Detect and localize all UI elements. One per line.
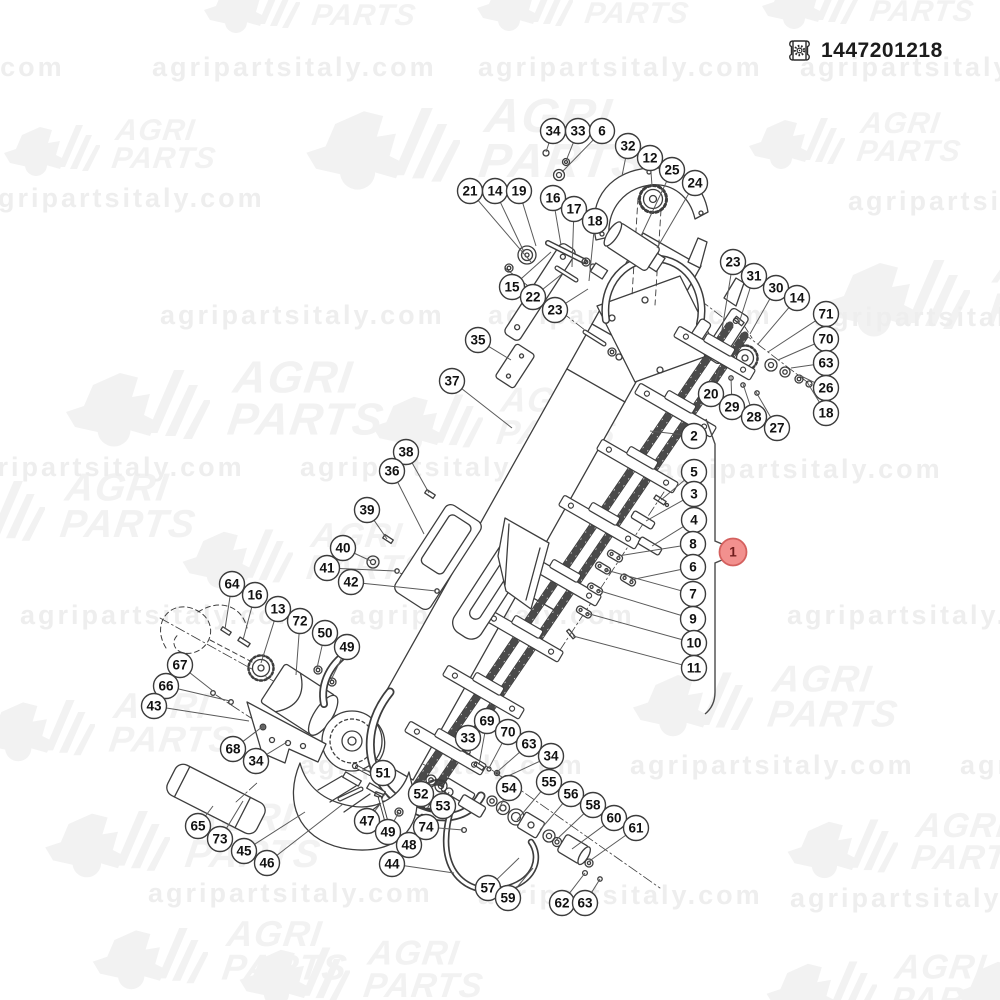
balloon-number: 24 — [687, 176, 703, 191]
balloon-13[interactable]: 13 — [261, 597, 291, 664]
balloon-number: 30 — [768, 281, 783, 296]
balloon-number: 31 — [746, 269, 762, 284]
leader-line — [404, 866, 454, 873]
balloon-number: 18 — [818, 406, 834, 421]
balloon-number: 14 — [789, 291, 805, 306]
balloon-number: 35 — [470, 333, 486, 348]
leader-line — [296, 633, 299, 675]
balloon-number: 26 — [818, 381, 834, 396]
balloon-number: 53 — [435, 799, 451, 814]
leader-line — [523, 203, 536, 246]
balloon-number: 20 — [703, 387, 718, 402]
balloon-33[interactable]: 33 — [566, 119, 591, 162]
leader-line — [412, 463, 429, 493]
balloon-number: 45 — [236, 844, 252, 859]
leader-line — [573, 636, 682, 665]
balloon-number: 11 — [687, 661, 702, 676]
leader-line — [652, 527, 683, 546]
balloon-number: 21 — [462, 184, 478, 199]
leader-line — [540, 803, 563, 830]
balloon-number: 38 — [398, 445, 414, 460]
balloon-number: 1 — [729, 545, 737, 560]
balloon-number: 2 — [690, 429, 698, 444]
leader-line — [731, 377, 732, 395]
leader-line — [592, 879, 600, 892]
balloon-number: 25 — [664, 163, 680, 178]
balloon-number: 71 — [818, 307, 834, 322]
balloon-number: 55 — [541, 775, 557, 790]
balloon-number: 69 — [479, 714, 494, 729]
balloon-number: 36 — [384, 464, 400, 479]
balloon-number: 29 — [724, 400, 739, 415]
leader-line — [190, 673, 213, 691]
balloon-number: 4 — [690, 513, 698, 528]
balloon-16[interactable]: 16 — [541, 186, 566, 246]
balloon-number: 8 — [689, 537, 697, 552]
balloon-43[interactable]: 43 — [142, 694, 250, 722]
machinery-linework — [160, 150, 815, 890]
balloon-number: 6 — [598, 124, 606, 139]
balloon-number: 28 — [746, 410, 762, 425]
leader-line — [243, 607, 252, 640]
balloon-number: 18 — [587, 214, 603, 229]
balloon-number: 70 — [818, 332, 833, 347]
balloon-number: 58 — [585, 798, 601, 813]
balloon-35[interactable]: 35 — [466, 328, 512, 361]
balloon-number: 65 — [190, 819, 206, 834]
leader-line — [586, 613, 682, 640]
balloon-number: 6 — [689, 560, 697, 575]
balloon-number: 34 — [543, 749, 559, 764]
balloon-number: 37 — [444, 374, 459, 389]
balloon-19[interactable]: 19 — [507, 179, 537, 247]
leader-line — [374, 520, 387, 539]
balloon-number: 40 — [335, 541, 350, 556]
balloon-number: 46 — [259, 856, 275, 871]
balloon-16[interactable]: 16 — [243, 583, 268, 641]
balloon-number: 23 — [725, 255, 741, 270]
leader-line — [562, 140, 593, 172]
balloon-number: 50 — [317, 626, 332, 641]
leader-line — [566, 143, 573, 161]
balloon-number: 39 — [359, 503, 374, 518]
balloon-number: 32 — [620, 139, 635, 154]
balloon-59[interactable]: 59 — [496, 868, 534, 911]
balloon-number: 48 — [401, 838, 417, 853]
balloon-64[interactable]: 64 — [220, 572, 245, 630]
balloon-63[interactable]: 63 — [791, 351, 839, 376]
leader-line — [778, 344, 815, 360]
leader-line — [768, 321, 816, 352]
balloon-1[interactable]: 1 — [720, 539, 747, 566]
balloon-72[interactable]: 72 — [288, 609, 313, 676]
balloon-number: 52 — [413, 787, 428, 802]
balloon-number: 74 — [418, 820, 434, 835]
leader-line — [497, 858, 519, 879]
leader-line — [506, 761, 540, 777]
balloon-number: 60 — [606, 811, 621, 826]
parts-diagram-page: AGRIPARTSAGRIPARTSAGRIPARTSAGRIPARTSAGRI… — [0, 0, 1000, 1000]
leader-line — [438, 828, 463, 830]
balloon-number: 17 — [566, 202, 581, 217]
balloon-6[interactable]: 6 — [630, 555, 706, 581]
leader-line — [758, 308, 789, 344]
balloon-number: 51 — [375, 766, 391, 781]
part-number: 1447201218 — [821, 39, 943, 63]
balloon-number: 34 — [545, 124, 561, 139]
balloon-number: 22 — [525, 290, 540, 305]
balloon-number: 19 — [511, 184, 526, 199]
leader-line — [566, 289, 588, 303]
leader-line — [497, 752, 520, 772]
balloon-34[interactable]: 34 — [541, 119, 566, 153]
leader-line — [500, 202, 524, 252]
balloon-36[interactable]: 36 — [380, 459, 425, 535]
balloon-40[interactable]: 40 — [331, 536, 372, 562]
balloon-number: 12 — [642, 151, 657, 166]
balloon-number: 66 — [158, 679, 174, 694]
balloon-49[interactable]: 49 — [331, 635, 360, 681]
leader-line — [750, 299, 770, 334]
balloon-39[interactable]: 39 — [355, 498, 388, 540]
balloon-number: 63 — [818, 356, 834, 371]
balloon-number: 70 — [500, 725, 515, 740]
certificate-gear-icon — [786, 37, 813, 64]
balloon-number: 61 — [628, 821, 644, 836]
leader-line — [178, 689, 230, 701]
balloon-number: 68 — [225, 742, 241, 757]
balloon-26[interactable]: 26 — [801, 376, 839, 401]
part-number-header: 1447201218 — [786, 37, 943, 64]
leader-line — [588, 835, 626, 862]
balloon-number: 42 — [343, 575, 358, 590]
balloon-number: 13 — [270, 602, 286, 617]
balloon-number: 57 — [480, 881, 495, 896]
balloon-number: 64 — [224, 577, 240, 592]
balloon-number: 5 — [690, 465, 698, 480]
leader-line — [606, 570, 681, 591]
balloon-number: 62 — [554, 896, 569, 911]
balloon-number: 44 — [384, 857, 400, 872]
exploded-parts-drawing: 3433632122524211419161718152223353723313… — [0, 0, 1000, 1000]
balloon-28[interactable]: 28 — [742, 384, 767, 430]
balloon-number: 16 — [247, 588, 263, 603]
leader-line — [478, 200, 531, 262]
leader-line — [166, 708, 249, 721]
leader-line — [572, 221, 574, 267]
balloon-number: 34 — [248, 754, 264, 769]
leader-line — [791, 365, 814, 368]
balloon-number: 72 — [292, 614, 307, 629]
balloon-number: 14 — [487, 184, 503, 199]
balloon-number: 73 — [212, 832, 228, 847]
balloon-number: 3 — [690, 487, 698, 502]
balloon-number: 27 — [769, 421, 784, 436]
balloon-number: 47 — [359, 814, 374, 829]
balloon-number: 10 — [686, 636, 701, 651]
leader-line — [317, 645, 322, 668]
balloon-number: 43 — [146, 699, 162, 714]
leader-line — [398, 482, 424, 534]
leader-line — [489, 743, 502, 768]
leader-line — [462, 389, 512, 428]
balloon-number: 67 — [172, 658, 187, 673]
balloon-number: 7 — [689, 587, 697, 602]
balloon-number: 59 — [500, 891, 515, 906]
leader-line — [555, 210, 561, 245]
balloon-number: 49 — [380, 825, 395, 840]
balloon-number: 33 — [460, 731, 476, 746]
balloon-number: 54 — [501, 781, 517, 796]
balloon-number: 49 — [339, 640, 354, 655]
balloon-number: 63 — [521, 737, 537, 752]
balloon-number: 63 — [577, 896, 593, 911]
group-bracket — [705, 419, 741, 714]
balloon-number: 16 — [545, 191, 561, 206]
balloon-number: 33 — [570, 124, 586, 139]
balloon-number: 41 — [319, 561, 335, 576]
leader-line — [597, 590, 681, 615]
balloon-number: 9 — [689, 612, 697, 627]
balloon-number: 15 — [504, 280, 520, 295]
leader-line — [489, 346, 511, 360]
leader-line — [225, 596, 230, 629]
balloon-number: 23 — [547, 303, 563, 318]
balloon-number: 56 — [563, 787, 579, 802]
